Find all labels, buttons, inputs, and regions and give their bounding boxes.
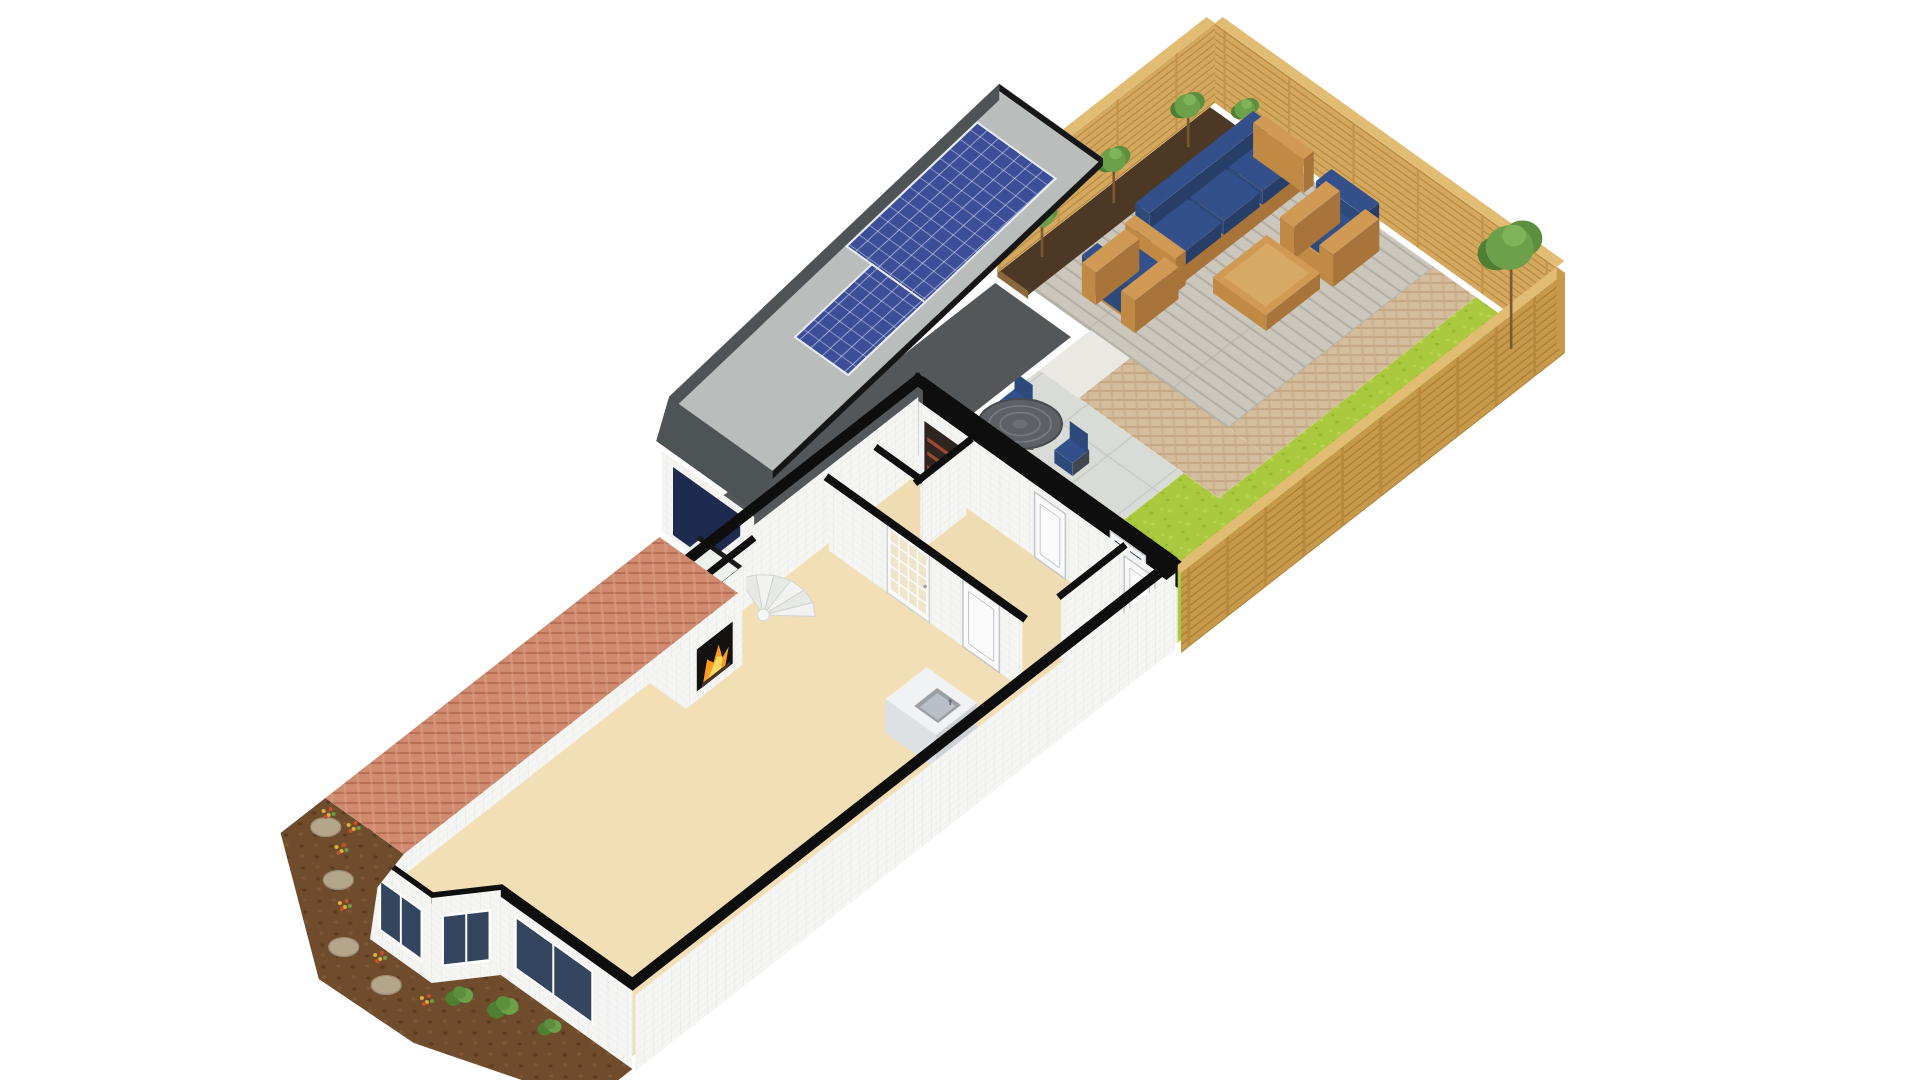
stepping-stone bbox=[323, 871, 353, 890]
floorplan-canvas bbox=[0, 0, 1920, 1080]
stepping-stone bbox=[329, 938, 359, 957]
bay-face-right bbox=[432, 890, 501, 983]
fence-corner-post bbox=[1557, 267, 1565, 353]
floorplan-3d-render bbox=[0, 0, 1920, 1080]
stepping-stone bbox=[371, 976, 401, 995]
stepping-stone bbox=[311, 818, 341, 837]
